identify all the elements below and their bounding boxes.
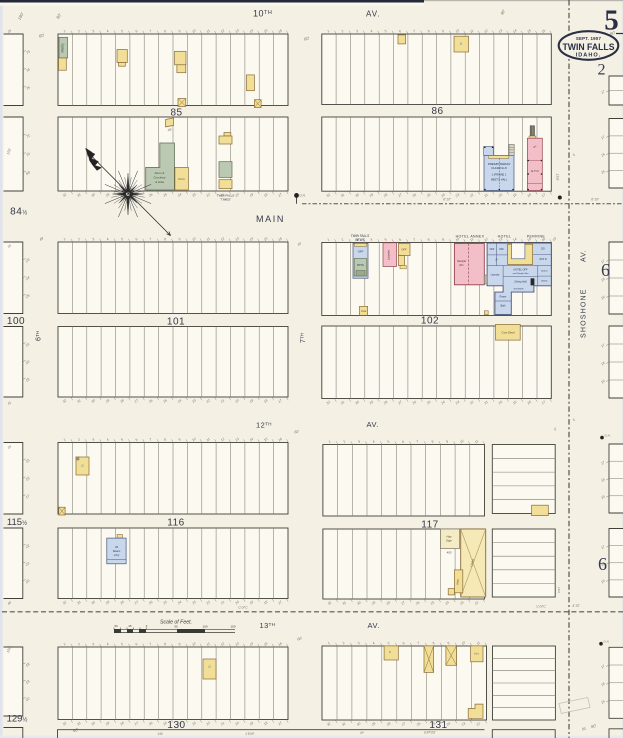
- svg-text:131: 131: [429, 720, 447, 731]
- svg-text:Laundry: Laundry: [387, 249, 391, 260]
- svg-text:O.H.: O.H.: [603, 640, 609, 644]
- svg-text:6'ST: 6'ST: [556, 173, 560, 181]
- svg-text:150: 150: [230, 625, 235, 629]
- svg-text:O.H.: O.H.: [604, 434, 610, 438]
- svg-text:EXPOS': EXPOS': [424, 731, 436, 735]
- svg-text:OFF: OFF: [490, 248, 495, 251]
- svg-text:C of C: C of C: [536, 605, 546, 609]
- svg-text:Coal: Coal: [361, 309, 367, 313]
- svg-text:IDAHO.: IDAHO.: [576, 52, 602, 58]
- svg-text:100: 100: [7, 316, 25, 327]
- svg-text:Machy: Machy: [60, 43, 64, 53]
- svg-text:OFF D: OFF D: [539, 258, 546, 261]
- svg-text:OFF: OFF: [401, 248, 407, 252]
- svg-text:85: 85: [170, 108, 182, 119]
- svg-text:101: 101: [167, 317, 185, 328]
- svg-text:& Hdw: & Hdw: [155, 180, 165, 184]
- svg-text:OFF: OFF: [499, 248, 504, 251]
- svg-text:PRTG: PRTG: [357, 263, 364, 267]
- svg-text:Barber: Barber: [541, 270, 548, 273]
- svg-text:6: 6: [598, 554, 607, 574]
- svg-text:Sample: Sample: [457, 259, 466, 263]
- svg-text:MAIN: MAIN: [256, 214, 285, 224]
- svg-text:2: 2: [598, 62, 606, 79]
- svg-text:KITCHEN: KITCHEN: [514, 289, 524, 291]
- svg-text:Bath: Bath: [501, 305, 507, 308]
- svg-text:6: 6: [601, 260, 610, 280]
- svg-text:“TIMES”: “TIMES”: [220, 198, 231, 202]
- svg-text:Sws: Sws: [474, 652, 480, 656]
- svg-text:6' ST: 6' ST: [443, 198, 452, 202]
- svg-text:400: 400: [447, 551, 452, 555]
- svg-text:MEET'G HALL: MEET'G HALL: [491, 179, 508, 182]
- svg-text:Dining Hall: Dining Hall: [514, 281, 527, 284]
- svg-text:50: 50: [114, 624, 118, 628]
- svg-text:140: 140: [157, 732, 163, 736]
- svg-text:Laundry: Laundry: [491, 274, 500, 277]
- svg-text:Cow Shed: Cow Shed: [502, 331, 515, 335]
- svg-text:2 EXP.: 2 EXP.: [244, 732, 255, 736]
- svg-text:C of C: C of C: [238, 606, 248, 610]
- svg-text:TWIN FALLS: TWIN FALLS: [563, 42, 615, 52]
- svg-text:102: 102: [421, 316, 439, 327]
- svg-text:Wag: Wag: [456, 579, 460, 585]
- svg-text:O.H.: O.H.: [299, 194, 306, 198]
- svg-text:1 (FRAME) 1: 1 (FRAME) 1: [492, 174, 507, 177]
- svg-text:and Sample Rm: and Sample Rm: [513, 273, 529, 275]
- svg-text:AV.: AV.: [581, 249, 588, 262]
- svg-text:Billi'ds: Billi'ds: [541, 281, 548, 283]
- svg-text:Furn: Furn: [178, 177, 185, 181]
- svg-text:25: 25: [128, 624, 132, 628]
- svg-text:L'dry: L'dry: [114, 553, 120, 557]
- svg-text:6' ST: 6' ST: [591, 198, 600, 202]
- svg-text:OFF: OFF: [358, 250, 364, 254]
- svg-text:117: 117: [421, 520, 438, 531]
- svg-text:AV.: AV.: [366, 10, 381, 19]
- svg-text:48: 48: [168, 128, 172, 132]
- svg-text:NEWS: NEWS: [355, 238, 365, 242]
- svg-text:86: 86: [431, 106, 443, 117]
- svg-text:Crockery: Crockery: [153, 176, 166, 180]
- svg-text:2º: 2º: [495, 258, 497, 262]
- svg-text:SEPT. 1907: SEPT. 1907: [576, 36, 602, 41]
- svg-text:50: 50: [174, 625, 178, 629]
- svg-text:HOTEL: HOTEL: [498, 235, 512, 239]
- svg-text:G.T.O: G.T.O: [531, 169, 540, 173]
- svg-text:6' ST: 6' ST: [572, 604, 580, 608]
- svg-text:Power: Power: [500, 296, 507, 299]
- svg-text:DO: DO: [541, 248, 545, 251]
- svg-text:SHOSHONE: SHOSHONE: [581, 288, 588, 338]
- svg-text:Stge: Stge: [446, 539, 452, 543]
- svg-text:33: 33: [115, 545, 119, 549]
- svg-text:AV.: AV.: [367, 420, 379, 429]
- svg-text:116: 116: [167, 518, 184, 529]
- svg-text:Steam: Steam: [113, 549, 121, 553]
- svg-text:CHURCH D: CHURCH D: [491, 166, 506, 170]
- svg-text:HOTEL OFF: HOTEL OFF: [514, 269, 528, 272]
- svg-text:100: 100: [202, 625, 207, 629]
- svg-text:PERRINE: PERRINE: [527, 235, 546, 239]
- svg-text:HOTEL ANNEX: HOTEL ANNEX: [456, 235, 485, 239]
- svg-text:AV.: AV.: [368, 621, 380, 630]
- svg-text:Farm &: Farm &: [155, 171, 165, 175]
